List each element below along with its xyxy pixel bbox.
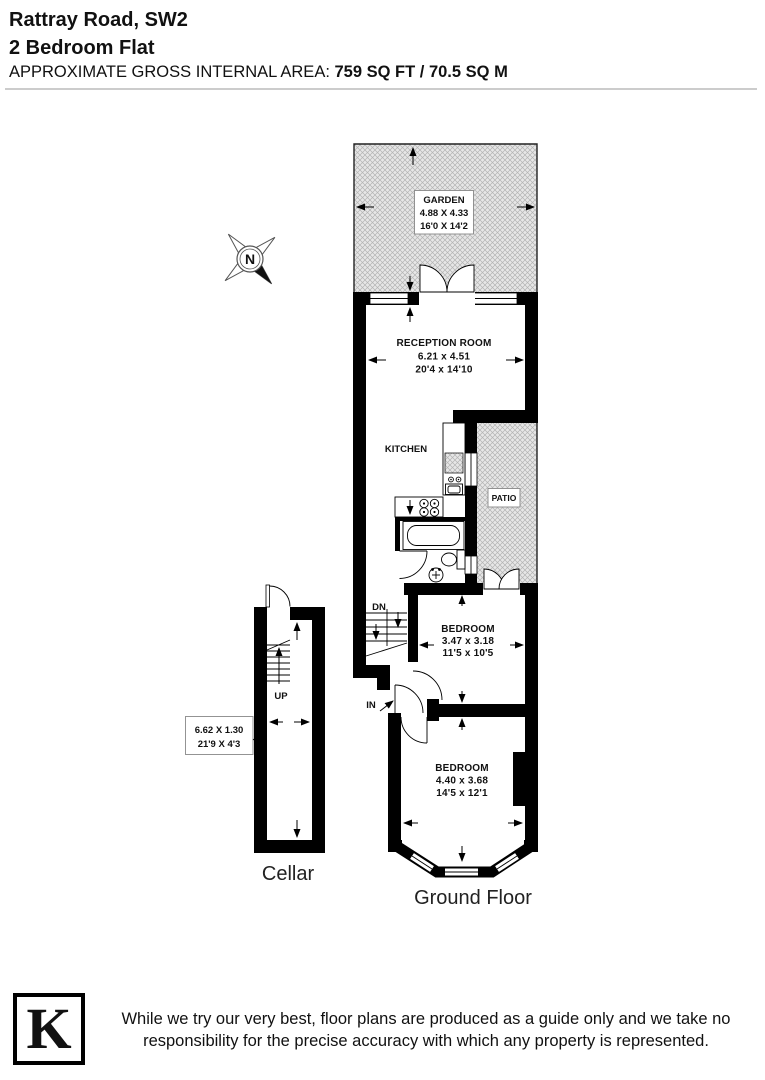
ground-floor-label: Ground Floor (414, 887, 532, 909)
cellar-door-leaf (266, 585, 270, 607)
bedroom1-name: BEDROOM (441, 624, 495, 635)
bay-window (398, 847, 530, 872)
disclaimer: While we try our very best, floor plans … (95, 1008, 757, 1052)
reception-dim-metric: 6.21 x 4.51 (418, 352, 470, 363)
patio-name: PATIO (492, 493, 517, 503)
garden-dim-metric: 4.88 X 4.33 (420, 208, 469, 219)
bedroom1-dim-metric: 3.47 x 3.18 (442, 636, 494, 647)
reception-name: RECEPTION ROOM (396, 338, 491, 349)
chimney-breast (513, 752, 525, 806)
stairs-up: UP (267, 640, 290, 702)
k-logo: K (13, 993, 85, 1065)
compass-north-label: N (245, 251, 255, 267)
compass-icon: N (203, 212, 296, 305)
kitchen-drainer (445, 453, 463, 473)
entrance-door-arc (395, 685, 423, 713)
bathroom-fixtures (403, 522, 465, 583)
cellar-dim-imperial: 21'9 X 4'3 (198, 739, 241, 750)
bedroom1-dim-imperial: 11'5 x 10'5 (443, 648, 494, 659)
k-logo-letter: K (26, 1000, 71, 1058)
bedroom2-dim-imperial: 14'5 x 12'1 (436, 788, 488, 799)
bedroom2-dim-metric: 4.40 x 3.68 (436, 776, 488, 787)
stairs-down-label: DN (372, 602, 386, 613)
kitchen-fixtures (395, 423, 465, 517)
reception-dim-imperial: 20'4 x 14'10 (415, 365, 472, 376)
entrance-arrow (380, 701, 393, 711)
cellar-door-arc (270, 586, 291, 607)
entrance: IN (366, 700, 393, 711)
toilet (442, 550, 466, 569)
floor-plan-svg: GARDEN 4.88 X 4.33 16'0 X 14'2 N (0, 0, 765, 970)
stairs-down: DN (366, 602, 407, 656)
disclaimer-line-1: While we try our very best, floor plans … (95, 1008, 757, 1030)
bathroom-door-arc (400, 551, 428, 579)
disclaimer-line-2: responsibility for the precise accuracy … (95, 1030, 757, 1052)
bedroom2-name: BEDROOM (435, 763, 489, 774)
cellar-area: UP 6.62 X 1.30 21'9 X 4'3 Cellar (186, 585, 326, 885)
cellar-dim-metric: 6.62 X 1.30 (195, 725, 244, 736)
garden-area: GARDEN 4.88 X 4.33 16'0 X 14'2 (354, 144, 537, 292)
bedroom2-door-arc (401, 717, 427, 743)
stairs-up-label: UP (274, 691, 288, 702)
cellar-name: Cellar (262, 863, 315, 885)
entrance-label: IN (366, 700, 376, 711)
garden-name: GARDEN (423, 195, 464, 206)
wash-basin (429, 568, 443, 582)
garden-dim-imperial: 16'0 X 14'2 (420, 221, 468, 232)
kitchen-name: KITCHEN (385, 444, 427, 455)
patio-area: PATIO (477, 423, 537, 583)
